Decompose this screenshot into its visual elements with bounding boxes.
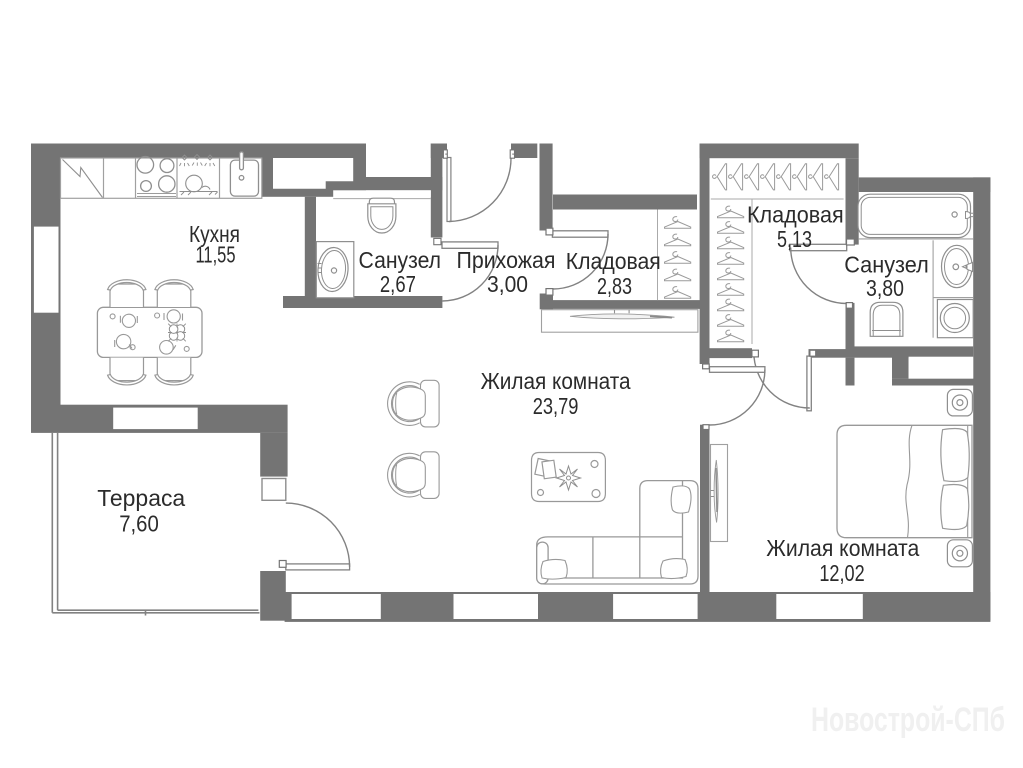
svg-text:12,02: 12,02	[819, 560, 864, 586]
svg-text:23,79: 23,79	[533, 393, 579, 419]
svg-text:3,80: 3,80	[866, 275, 904, 301]
svg-text:2,83: 2,83	[597, 273, 632, 299]
svg-text:Жилая комната: Жилая комната	[481, 368, 631, 394]
svg-text:Санузел: Санузел	[844, 252, 929, 278]
svg-text:5,13: 5,13	[777, 226, 812, 252]
svg-text:3,00: 3,00	[487, 271, 528, 297]
svg-text:Терраса: Терраса	[97, 485, 185, 511]
svg-text:Жилая комната: Жилая комната	[766, 535, 919, 561]
svg-text:Новострой-СПб: Новострой-СПб	[811, 701, 1005, 739]
svg-text:Кладовая: Кладовая	[566, 248, 661, 274]
svg-text:Санузел: Санузел	[359, 247, 442, 273]
svg-text:Прихожая: Прихожая	[457, 247, 556, 273]
svg-text:7,60: 7,60	[119, 511, 159, 537]
svg-text:2,67: 2,67	[380, 271, 416, 297]
svg-text:11,55: 11,55	[196, 242, 236, 268]
svg-text:Кладовая: Кладовая	[747, 202, 844, 228]
